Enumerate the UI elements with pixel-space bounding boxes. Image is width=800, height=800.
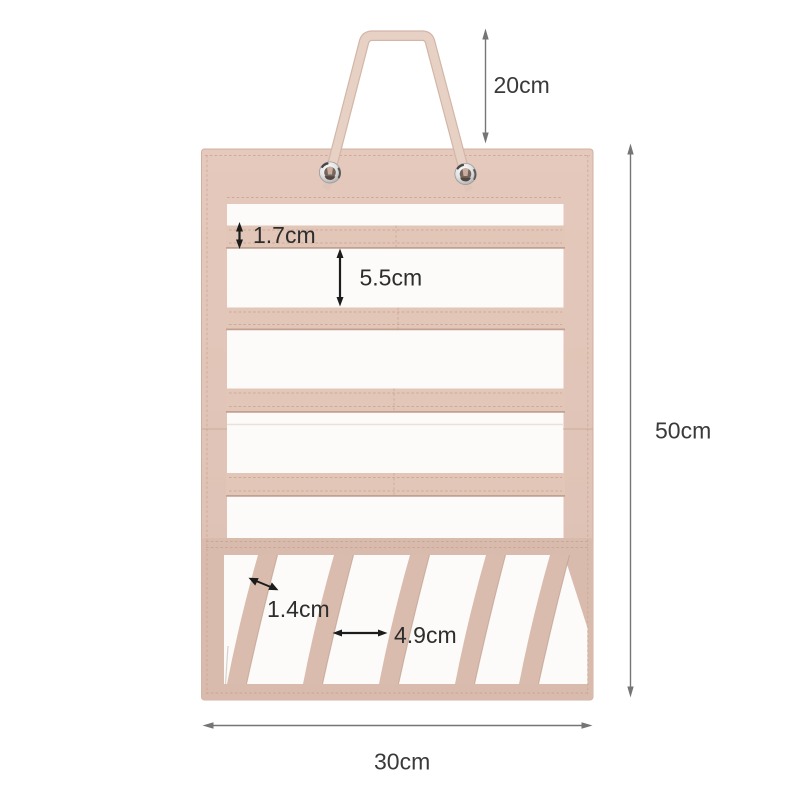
svg-text:1.7cm: 1.7cm: [253, 222, 316, 248]
svg-text:20cm: 20cm: [494, 72, 550, 98]
svg-text:1.4cm: 1.4cm: [267, 596, 330, 622]
svg-text:5.5cm: 5.5cm: [360, 265, 423, 291]
svg-text:30cm: 30cm: [374, 749, 430, 775]
svg-text:4.9cm: 4.9cm: [394, 622, 457, 648]
svg-text:50cm: 50cm: [655, 418, 711, 444]
